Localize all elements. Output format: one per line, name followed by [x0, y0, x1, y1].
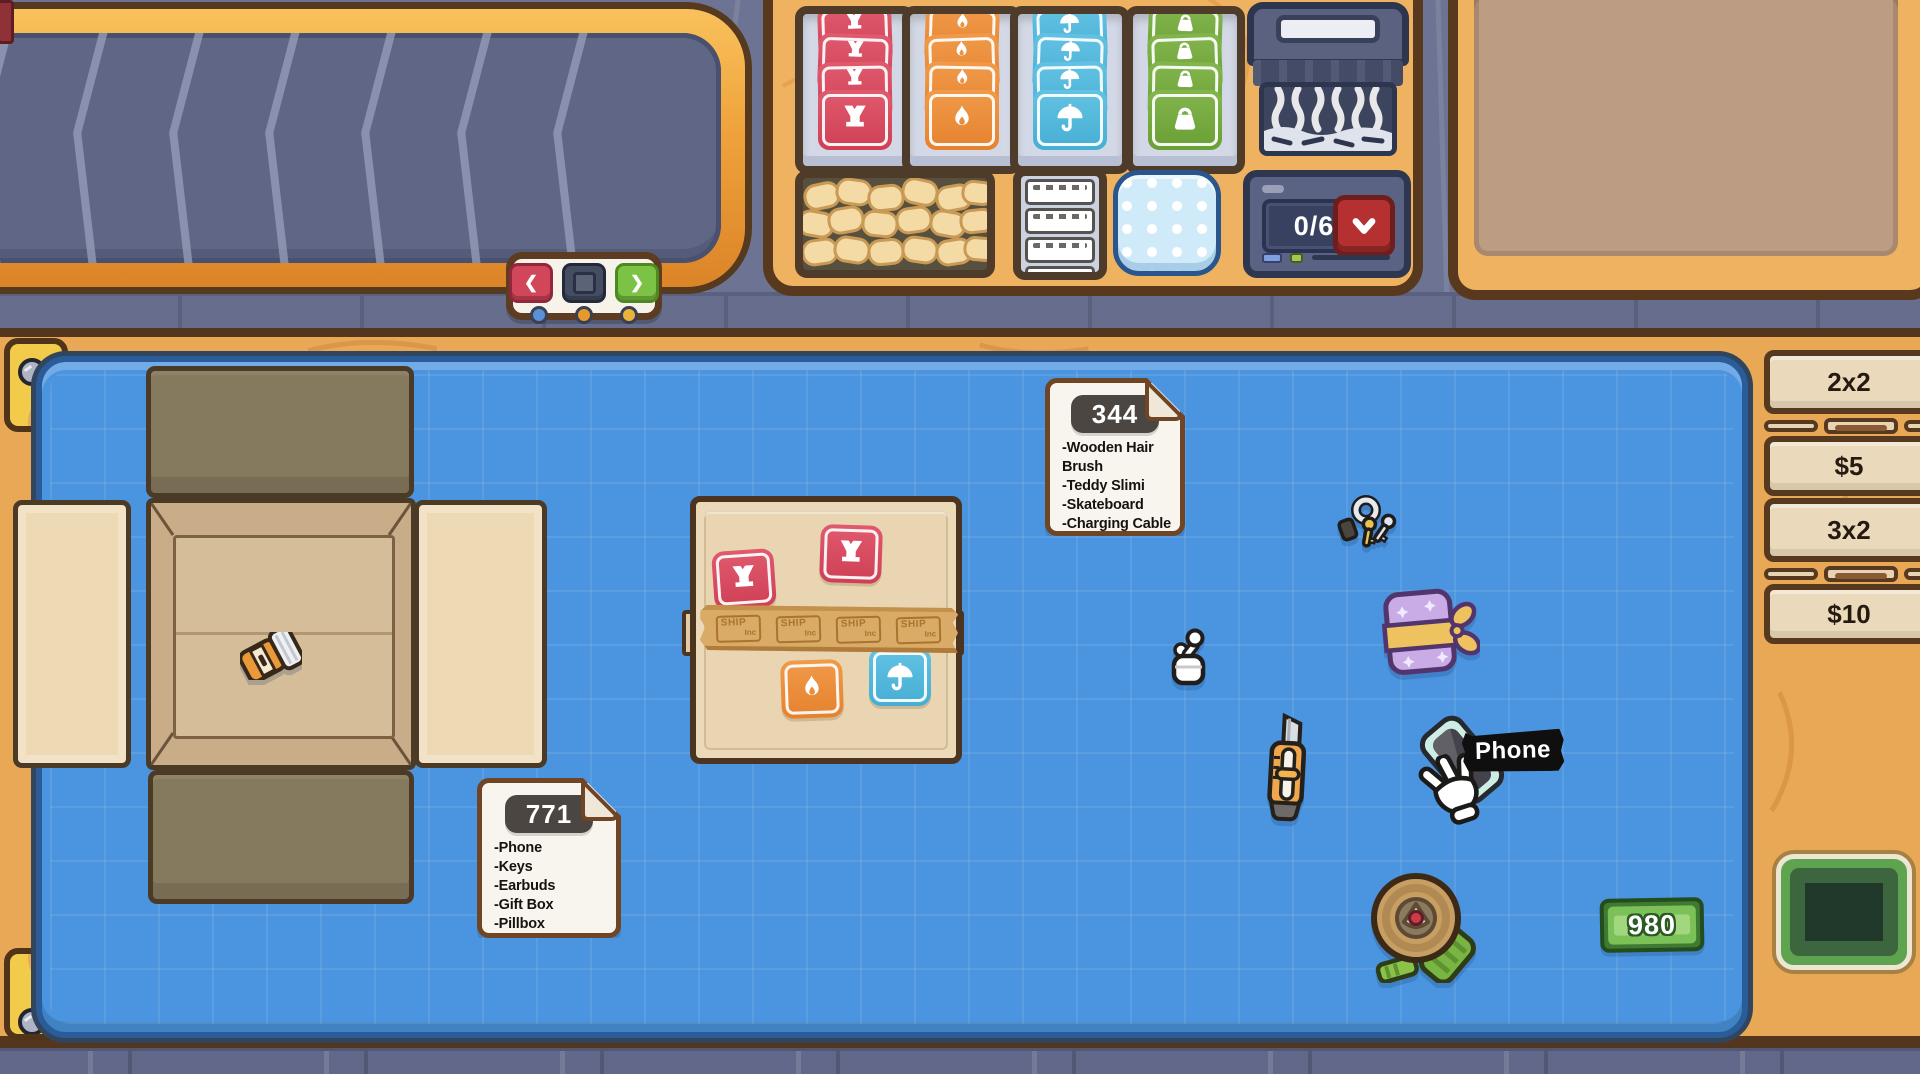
order-item: -Skateboard: [1062, 496, 1174, 515]
packing-game-screen: ❮ ❯: [0, 0, 1920, 1074]
indicator-dot-orange: [575, 306, 593, 324]
fragile-glass-icon: [727, 562, 761, 596]
machine-slot: [1312, 255, 1390, 260]
tape-dispenser-item[interactable]: [1368, 868, 1478, 983]
deposit-tray-interior: [1790, 868, 1898, 956]
umbrella-icon: [1058, 67, 1082, 91]
flammable-sticker-tray[interactable]: [902, 6, 1022, 174]
chevron-left-icon: ❮: [524, 273, 538, 293]
weight-icon: [1172, 39, 1197, 64]
fragile-sticker-tray[interactable]: [795, 6, 915, 174]
shredder-output: [1259, 82, 1397, 156]
packing-peanuts-tray[interactable]: [795, 170, 995, 278]
order-item: -Charging Cable: [1062, 515, 1174, 534]
open-box-flap-bottom[interactable]: [148, 770, 414, 904]
bubble-wrap[interactable]: [1113, 170, 1221, 276]
next-order-button[interactable]: ❯: [615, 263, 659, 303]
order-note-771[interactable]: 771 -Phone -Keys -Earbuds -Gift Box -Pil…: [477, 778, 621, 938]
box-price-3x2[interactable]: $10: [1764, 584, 1920, 644]
fragile-sticker-applied: [819, 524, 883, 584]
order-counter-machine: 0/6: [1243, 170, 1411, 278]
shredder-handle: [1276, 15, 1380, 43]
keep-dry-sticker-applied: [869, 648, 931, 706]
umbrella-icon: [884, 661, 916, 693]
weight-icon: [1173, 11, 1198, 36]
tooltip-label: Phone: [1475, 736, 1552, 766]
label-sheet: [1025, 237, 1095, 263]
fragile-glass-icon: [839, 103, 871, 135]
box-cutter-item[interactable]: [1258, 712, 1314, 824]
supplies-table: 0/6: [763, 0, 1423, 296]
box-option-2x2-edge: [1764, 418, 1920, 434]
machine-vent: [1262, 185, 1284, 193]
indicator-dot-blue: [530, 306, 548, 324]
stop-square-icon: [573, 272, 596, 294]
box-option-3x2-edge: [1764, 566, 1920, 582]
tape-brand-stamp: SHIPInc: [716, 614, 762, 642]
shredder[interactable]: [1247, 2, 1409, 160]
stop-button[interactable]: [562, 263, 606, 303]
order-nav-panel: ❮ ❯: [506, 252, 662, 320]
money-bill[interactable]: 980: [1600, 897, 1705, 953]
fragile-glass-icon: [843, 67, 867, 91]
weight-icon: [1173, 67, 1197, 91]
keep-dry-sticker-tray[interactable]: [1010, 6, 1130, 174]
machine-chip-blue: [1262, 253, 1282, 263]
order-item: -Wooden Hair Brush: [1062, 439, 1174, 477]
umbrella-icon: [1058, 39, 1083, 64]
order-item: -Earbuds: [494, 877, 610, 896]
box-option-2x2[interactable]: 2x2: [1764, 350, 1920, 414]
flame-icon: [949, 39, 974, 64]
open-box-flap-left[interactable]: [13, 500, 131, 768]
shredder-lid: [1247, 2, 1409, 66]
conveyor-frame: [0, 2, 752, 294]
corkboard-frame: [1448, 0, 1920, 300]
prev-order-button[interactable]: ❮: [509, 263, 553, 303]
order-items-list: -Wooden Hair Brush -Teddy Slimi -Skatebo…: [1062, 439, 1174, 553]
order-item: -Phone: [494, 839, 610, 858]
chevron-right-icon: ❯: [630, 273, 644, 293]
label-sheet: [1025, 179, 1095, 205]
box-size-label: 2x2: [1827, 367, 1870, 398]
money-bill-face: 980: [1608, 905, 1697, 945]
box-price-label: $5: [1835, 451, 1864, 482]
earbuds-item[interactable]: [1164, 626, 1214, 690]
tape-brand-stamp: SHIPInc: [896, 616, 942, 644]
flame-icon: [950, 11, 975, 36]
open-box-flap-right[interactable]: [414, 500, 547, 768]
fragile-glass-icon: [843, 39, 868, 64]
fragile-glass-icon: [834, 537, 867, 570]
order-note-344[interactable]: 344 -Wooden Hair Brush -Teddy Slimi -Ska…: [1045, 378, 1185, 536]
gift-box-item[interactable]: [1380, 582, 1480, 680]
flame-icon: [946, 103, 978, 135]
tape-brand-stamp: SHIPInc: [776, 615, 822, 643]
chevron-down-icon: [1350, 212, 1378, 240]
money-amount: 980: [1628, 909, 1677, 941]
fragile-sticker-applied: [711, 548, 777, 610]
confirm-order-button[interactable]: [1333, 195, 1395, 257]
order-item: -Teddy Slimi: [1062, 477, 1174, 496]
umbrella-icon: [1054, 102, 1086, 134]
conveyor-belt: [0, 33, 721, 263]
label-sheet: [1025, 266, 1095, 280]
packing-tape-strip: SHIPInc SHIPInc SHIPInc SHIPInc: [700, 605, 958, 653]
incoming-package-sliver: [0, 0, 14, 44]
corkboard[interactable]: [1474, 0, 1898, 256]
box-price-label: $10: [1827, 599, 1870, 630]
umbrella-icon: [1057, 11, 1082, 36]
conveyor-border: [0, 9, 745, 287]
floor-strip: [0, 1046, 1920, 1074]
pillbox-item[interactable]: [240, 632, 302, 680]
label-sheet: [1025, 208, 1095, 234]
keys-item[interactable]: [1332, 494, 1406, 554]
open-box-flap-top[interactable]: [146, 366, 414, 498]
box-option-3x2[interactable]: 3x2: [1764, 498, 1920, 562]
deposit-tray[interactable]: [1776, 854, 1912, 970]
box-price-2x2[interactable]: $5: [1764, 436, 1920, 496]
flammable-sticker-applied: [780, 659, 844, 719]
tape-brand-stamp: SHIPInc: [836, 615, 882, 643]
order-item: -Gift Box: [494, 896, 610, 915]
box-size-label: 3x2: [1827, 515, 1870, 546]
fragile-glass-icon: [842, 11, 867, 36]
flame-icon: [950, 67, 974, 91]
indicator-dot-yellow: [620, 306, 638, 324]
machine-chip-green: [1290, 253, 1303, 263]
order-items-list: -Phone -Keys -Earbuds -Gift Box -Pillbox: [494, 839, 610, 934]
order-item: -Keys: [494, 858, 610, 877]
weight-icon: [1169, 103, 1201, 135]
order-item: -Pillbox: [494, 915, 610, 934]
flame-icon: [795, 672, 828, 705]
shipping-labels-stack[interactable]: [1013, 168, 1107, 280]
heavy-sticker-tray[interactable]: [1125, 6, 1245, 174]
